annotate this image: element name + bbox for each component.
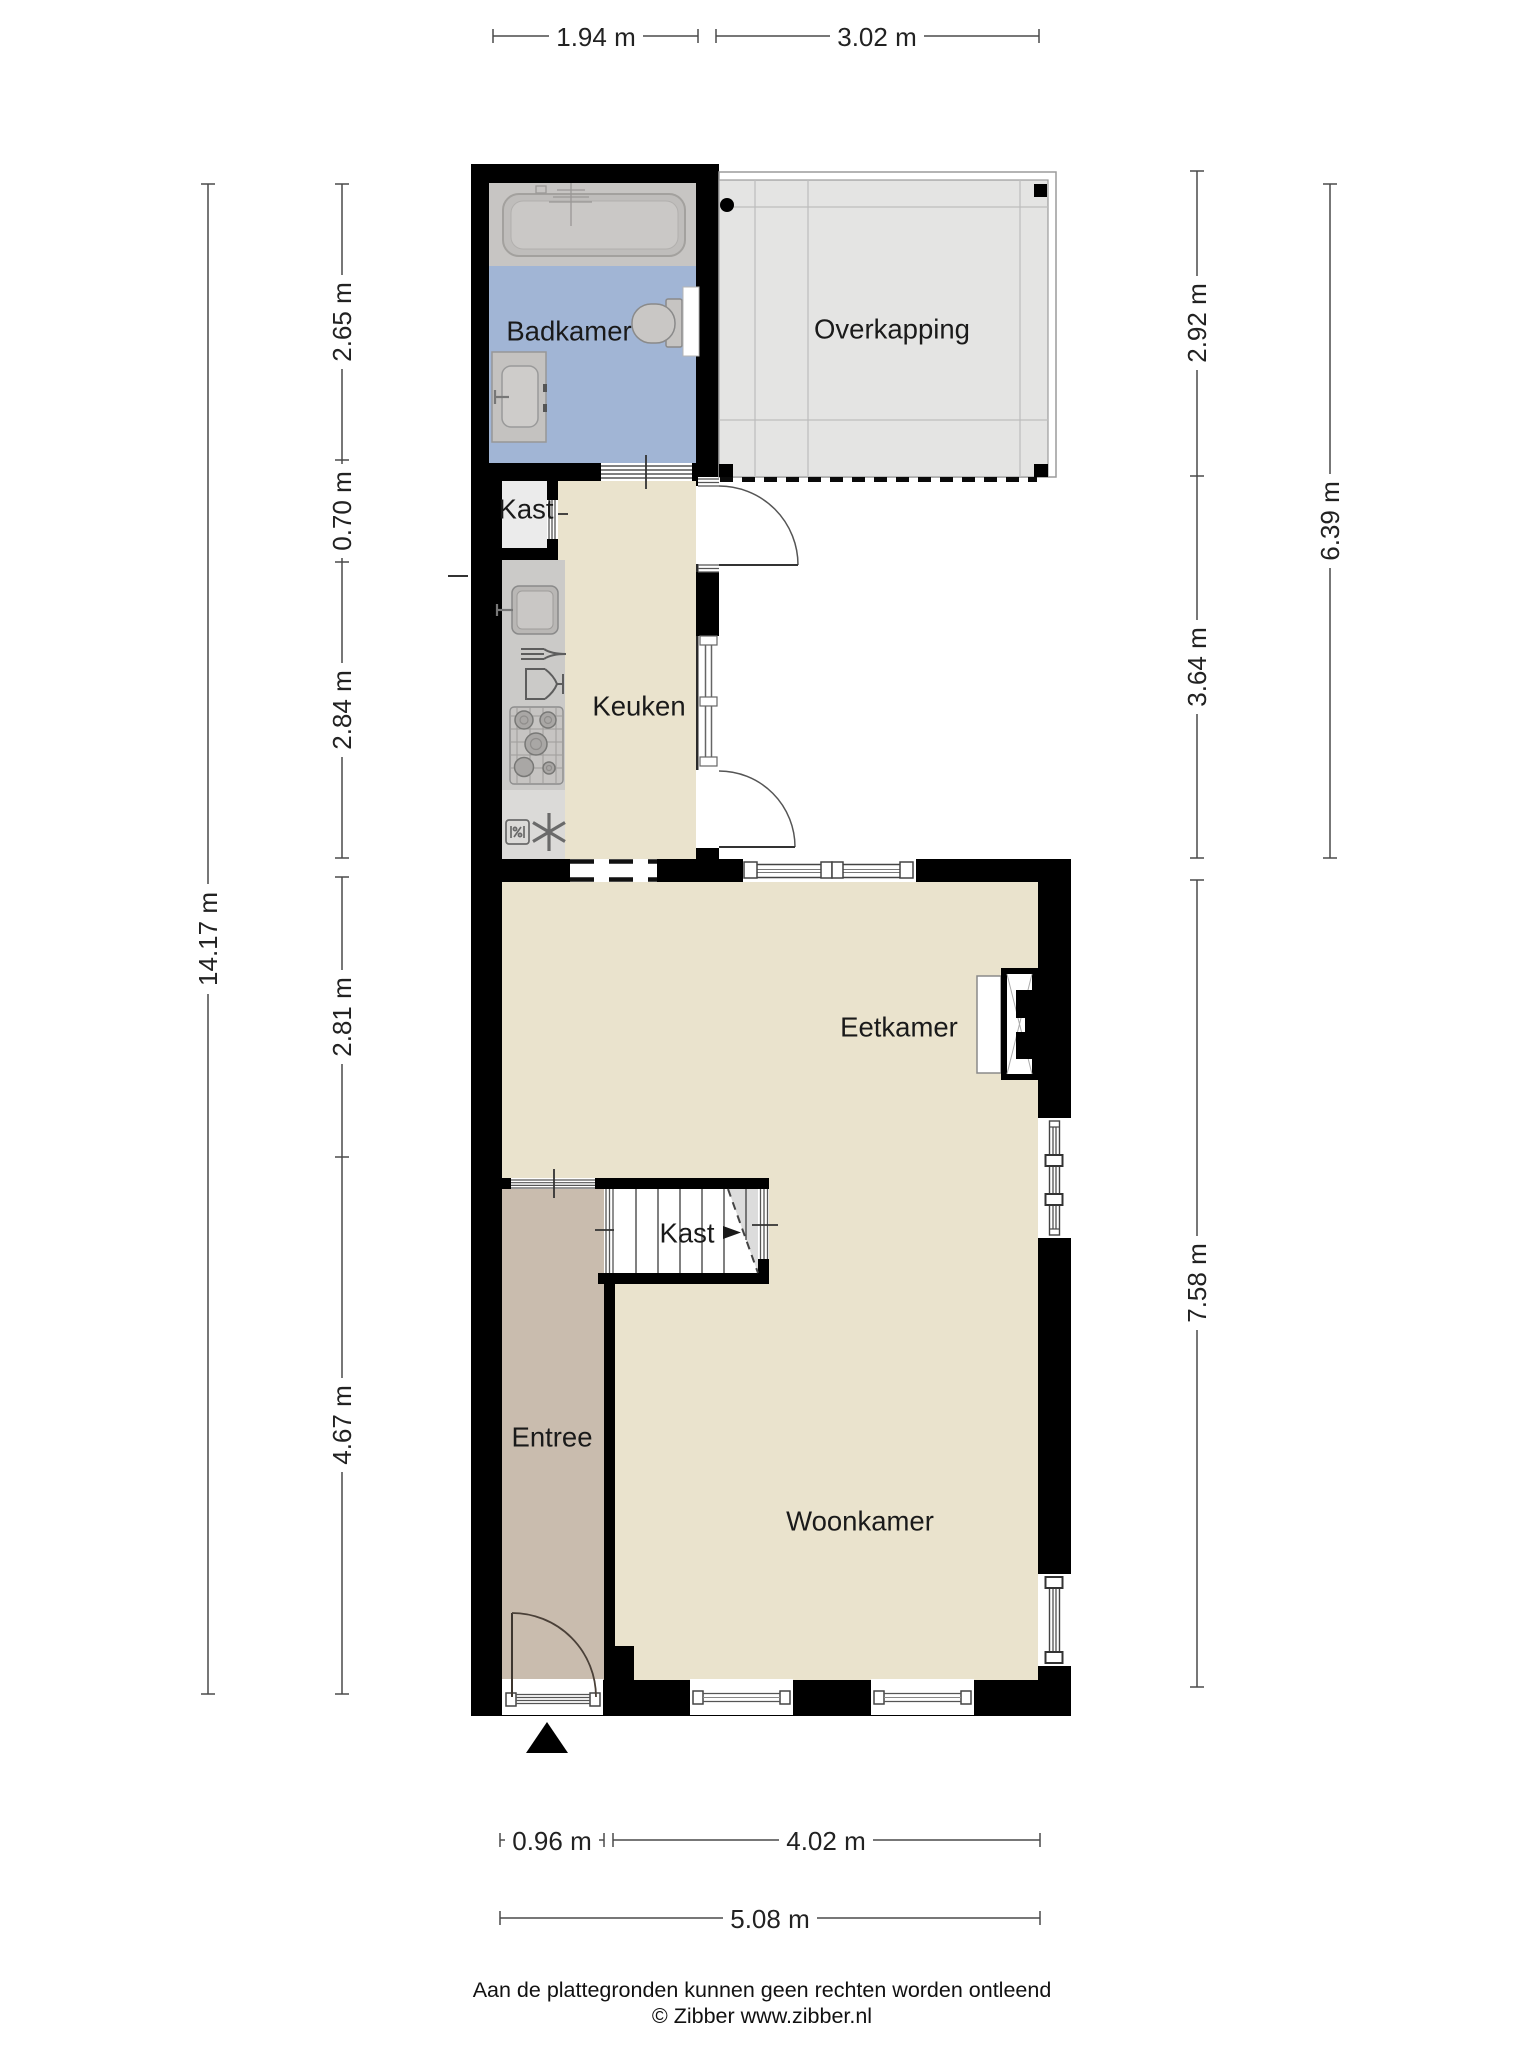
svg-text:2.92 m: 2.92 m (1182, 283, 1212, 363)
svg-text:Entree: Entree (511, 1422, 592, 1453)
svg-text:3.64 m: 3.64 m (1182, 627, 1212, 707)
svg-text:Keuken: Keuken (592, 691, 685, 722)
svg-text:1.94 m: 1.94 m (556, 22, 636, 52)
svg-text:Badkamer: Badkamer (506, 316, 631, 347)
svg-text:Aan de plattegronden kunnen ge: Aan de plattegronden kunnen geen rechten… (473, 1978, 1052, 2002)
svg-text:Woonkamer: Woonkamer (786, 1506, 934, 1537)
svg-text:2.81 m: 2.81 m (327, 977, 357, 1057)
svg-text:2.84 m: 2.84 m (327, 670, 357, 750)
svg-text:3.02 m: 3.02 m (837, 22, 917, 52)
svg-text:14.17 m: 14.17 m (193, 892, 223, 986)
svg-text:6.39 m: 6.39 m (1315, 481, 1345, 561)
svg-text:Kast: Kast (498, 494, 553, 525)
svg-text:4.67 m: 4.67 m (327, 1385, 357, 1465)
svg-text:5.08 m: 5.08 m (730, 1904, 810, 1934)
svg-text:4.02 m: 4.02 m (786, 1826, 866, 1856)
svg-text:Overkapping: Overkapping (814, 314, 970, 345)
svg-text:Eetkamer: Eetkamer (840, 1012, 958, 1043)
svg-text:0.70 m: 0.70 m (327, 471, 357, 551)
svg-text:2.65 m: 2.65 m (327, 282, 357, 362)
svg-text:7.58 m: 7.58 m (1182, 1243, 1212, 1323)
svg-text:0.96 m: 0.96 m (512, 1826, 592, 1856)
svg-text:Kast: Kast (659, 1218, 714, 1249)
svg-text:© Zibber www.zibber.nl: © Zibber www.zibber.nl (652, 2004, 872, 2028)
